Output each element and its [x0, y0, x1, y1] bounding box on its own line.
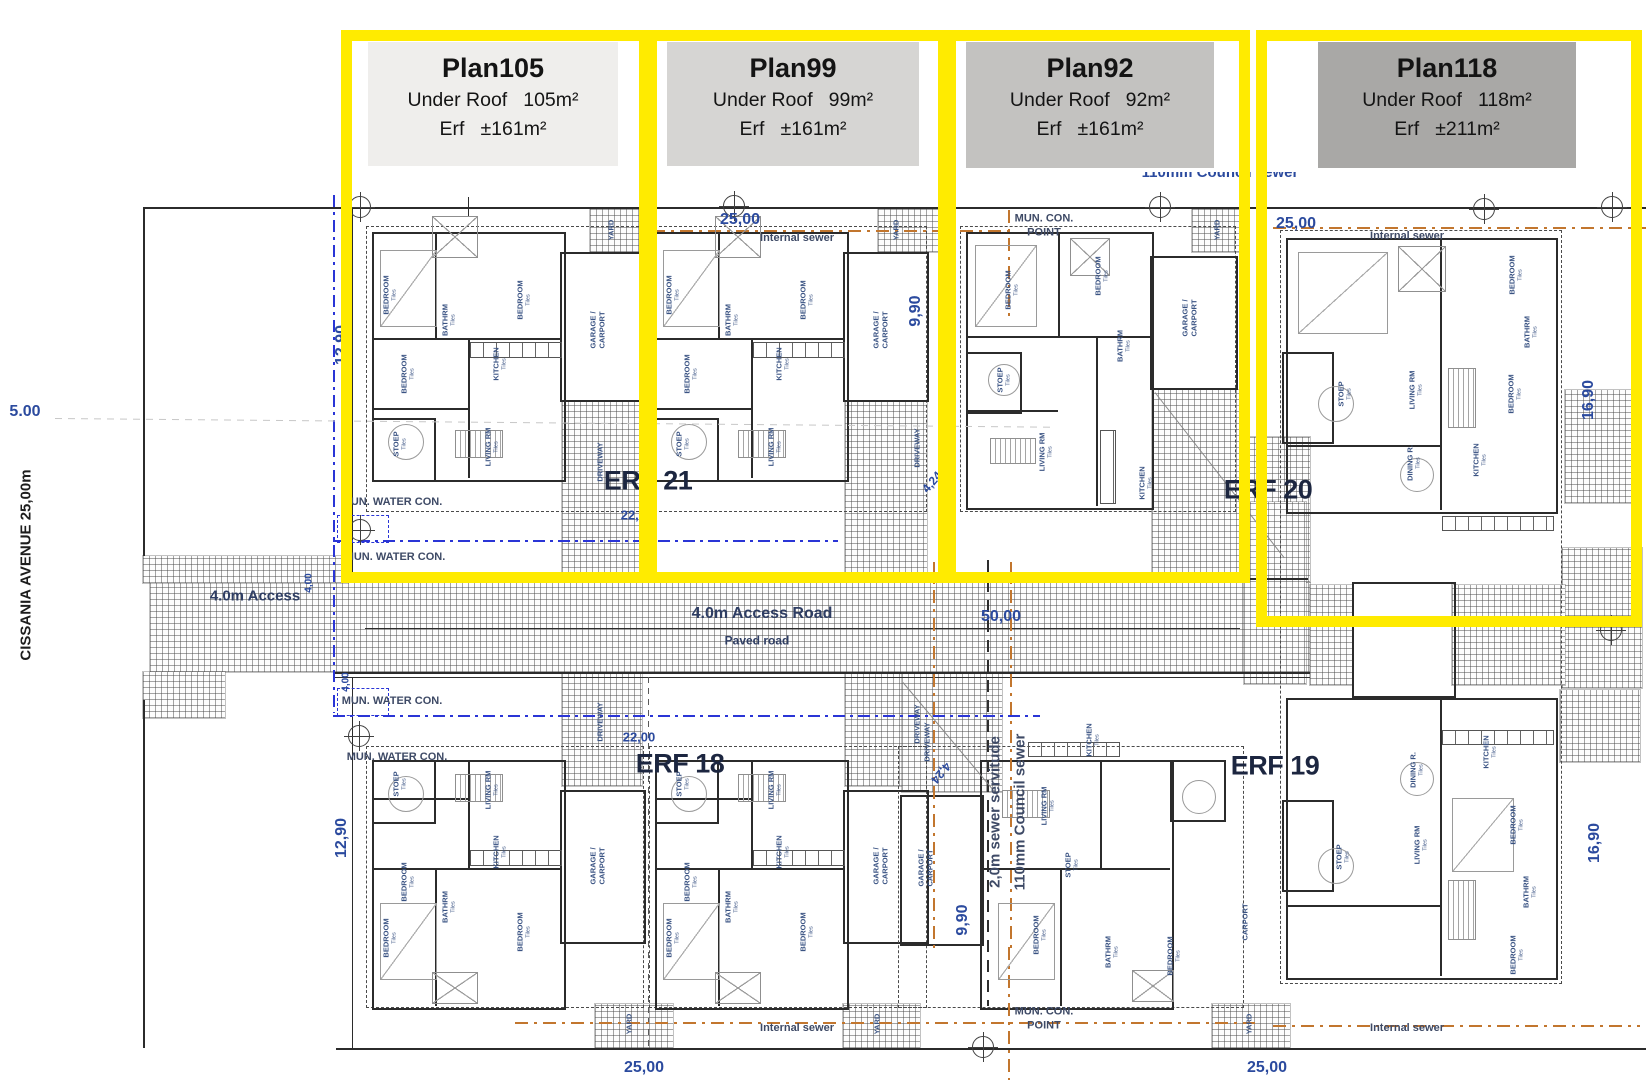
room-label-bedroom: BEDROOMTiles: [1510, 935, 1525, 974]
note-label-mun-con-point: MUN. CON. POINT: [1015, 1005, 1074, 1033]
plan-card-plan99: Plan99Under Roof99m²Erf±161m²: [667, 42, 919, 166]
room-label-text: YARD: [625, 1014, 634, 1035]
room-label-bathrm: BATHRMTiles: [1105, 936, 1120, 968]
erf-label-erf-19: ERF 19: [1231, 751, 1320, 782]
room-label-text: BEDROOM: [1166, 936, 1175, 975]
furniture-b: [1452, 798, 1514, 872]
room-label-text: CARPORT: [1241, 903, 1250, 940]
room-label-dining-r: DINING R.Tiles: [1410, 752, 1425, 788]
room-label-kitchen: KITCHENTiles: [776, 835, 791, 868]
sewer-line: [1273, 1025, 1640, 1027]
note-label-110mm-council-sewer: 110mm Council sewer: [1012, 734, 1031, 891]
note-label-4-0m-access: 4.0m Access: [210, 588, 300, 607]
room-label-text: BATHRM: [441, 891, 450, 923]
drawing-line: [365, 628, 1240, 629]
plan-card-erf_label: Erf: [1037, 115, 1062, 144]
room-label-subtext: Tiles: [450, 891, 456, 923]
dimension-label-50-00: 50,00: [981, 608, 1021, 626]
plan-card-under_roof_label: Under Roof: [408, 86, 508, 115]
room-label-text: KITCHEN: [1482, 735, 1491, 768]
plan-card-row: Erf±161m²: [1037, 115, 1144, 144]
room-label-subtext: Tiles: [808, 912, 814, 951]
plan-card-erf_label: Erf: [740, 115, 765, 144]
plan-card-title: Plan92: [1046, 52, 1133, 86]
furniture-t: [1182, 780, 1216, 814]
room-label-text: BATHRM: [1522, 876, 1531, 908]
plan-card-row: Erf±211m²: [1394, 115, 1499, 144]
hatch-region: [1560, 690, 1640, 762]
room-label-text: BEDROOM: [1509, 935, 1518, 974]
plan-card-plan92: Plan92Under Roof92m²Erf±161m²: [966, 42, 1214, 168]
room-label-subtext: Tiles: [525, 912, 531, 951]
room-label-text: STOEP: [1064, 852, 1073, 877]
room-label-subtext: Tiles: [1113, 936, 1119, 968]
note-label-paved-road: Paved road: [725, 634, 790, 649]
plan-card-plan118: Plan118Under Roof118m²Erf±211m²: [1318, 42, 1576, 168]
note-label-4-0m-access-road: 4.0m Access Road: [692, 604, 833, 624]
room-label-text: BEDROOM: [665, 918, 674, 957]
room-label-yard: YARD: [874, 1014, 883, 1035]
plan-card-erf_label: Erf: [1394, 115, 1419, 144]
room-label-subtext: Tiles: [1073, 852, 1079, 877]
room-label-living-rm: LIVING RMTiles: [485, 771, 500, 810]
room-label-text: BEDROOM: [1032, 915, 1041, 954]
furniture-k: [1442, 730, 1554, 745]
room-label-text: BEDROOM: [799, 912, 808, 951]
room-label-subtext: Tiles: [409, 862, 415, 901]
plan-card-title: Plan118: [1397, 52, 1498, 86]
room-label-driveway: DRIVEWAY: [924, 722, 933, 761]
dimension-label-5-00: 5.00: [9, 403, 40, 421]
plan-card-under_roof_value: 92m²: [1126, 86, 1170, 115]
room-label-text: KITCHEN: [492, 835, 501, 868]
drawing-line: [1286, 905, 1440, 907]
room-label-living-rm: LIVING RMTiles: [768, 771, 783, 810]
room-label-subtext: Tiles: [1518, 805, 1524, 844]
room-label-stoep: STOEPTiles: [1336, 844, 1351, 869]
room-label-text: DINING R.: [1409, 752, 1418, 788]
room-label-text: LIVING RM: [484, 771, 493, 810]
room-label-bedroom: BEDROOMTiles: [1167, 936, 1182, 975]
room-label-subtext: Tiles: [1491, 735, 1497, 768]
room-label-subtext: Tiles: [1418, 752, 1424, 788]
drawing-line: [143, 700, 145, 1048]
room-label-kitchen: KITCHENTiles: [1086, 723, 1101, 756]
room-label-bedroom: BEDROOMTiles: [401, 862, 416, 901]
plan-card-plan105: Plan105Under Roof105m²Erf±161m²: [368, 42, 618, 166]
room-label-garage-carport: GARAGE / CARPORT: [872, 847, 889, 884]
room-label-text: STOEP: [392, 771, 401, 796]
room-label-text: LIVING RM: [767, 771, 776, 810]
room-label-text: GARAGE / CARPORT: [588, 847, 606, 884]
note-label-internal-sewer: Internal sewer: [760, 1022, 834, 1036]
dimension-label-4-00: 4,00: [341, 672, 352, 691]
room-label-driveway: DRIVEWAY: [597, 702, 606, 741]
dimension-label-25-00: 25,00: [624, 1059, 664, 1077]
room-label-subtext: Tiles: [1518, 935, 1524, 974]
room-label-text: DRIVEWAY: [923, 722, 932, 761]
plan-card-row: Erf±161m²: [740, 115, 847, 144]
sewer-line: [933, 562, 935, 954]
room-label-stoep: STOEPTiles: [1065, 852, 1080, 877]
room-label-text: BATHRM: [1104, 936, 1113, 968]
room-label-text: LIVING RM: [1040, 787, 1049, 826]
plan-card-row: Under Roof99m²: [713, 86, 873, 115]
room-label-text: DRIVEWAY: [913, 704, 922, 743]
furniture-x: [715, 972, 761, 1004]
note-label-mun-water-con: MUN. WATER CON.: [342, 695, 443, 709]
room-label-bedroom: BEDROOMTiles: [1033, 915, 1048, 954]
room-label-subtext: Tiles: [501, 835, 507, 868]
room-label-living-rm: LIVING RMTiles: [1041, 787, 1056, 826]
drawing-line: [1100, 760, 1102, 868]
room-label-subtext: Tiles: [1175, 936, 1181, 975]
plan-card-row: Under Roof118m²: [1362, 86, 1532, 115]
drawing-line: [333, 677, 1310, 678]
furniture-k: [753, 850, 845, 866]
room-label-text: KITCHEN: [775, 835, 784, 868]
room-label-subtext: Tiles: [1094, 723, 1100, 756]
drawing-line: [1060, 868, 1062, 1006]
plan-card-under_roof_value: 105m²: [523, 86, 578, 115]
plan-card-row: Erf±161m²: [440, 115, 547, 144]
hatch-region: [143, 556, 348, 583]
room-label-text: YARD: [1245, 1014, 1254, 1035]
drawing-line: [143, 207, 145, 556]
hatch-region: [143, 672, 225, 718]
room-label-text: YARD: [873, 1014, 882, 1035]
room-label-bedroom: BEDROOMTiles: [383, 918, 398, 957]
erf-label-erf-18: ERF 18: [636, 749, 725, 780]
room-label-text: BATHRM: [724, 891, 733, 923]
room-label-bedroom: BEDROOMTiles: [517, 912, 532, 951]
water-line: [333, 715, 1040, 717]
room-label-kitchen: KITCHENTiles: [493, 835, 508, 868]
plan-card-erf_value: ±161m²: [780, 115, 846, 144]
room-label-garage-carport: GARAGE / CARPORT: [917, 849, 934, 886]
room-label-subtext: Tiles: [1344, 844, 1350, 869]
room-label-yard: YARD: [626, 1014, 635, 1035]
room-label-subtext: Tiles: [776, 771, 782, 810]
room-label-subtext: Tiles: [493, 771, 499, 810]
room-label-bathrm: BATHRMTiles: [725, 891, 740, 923]
room-label-text: LIVING RM: [1413, 826, 1422, 865]
site-plan-canvas: Plan105Under Roof105m²Erf±161m²Plan99Und…: [0, 0, 1646, 1080]
room-label-subtext: Tiles: [784, 835, 790, 868]
room-label-subtext: Tiles: [1041, 915, 1047, 954]
plan-card-title: Plan105: [442, 52, 544, 86]
room-label-subtext: Tiles: [1049, 787, 1055, 826]
drawing-line: [333, 672, 1310, 674]
room-label-bedroom: BEDROOMTiles: [1510, 805, 1525, 844]
survey-marker-icon: [972, 1036, 994, 1058]
room-label-yard: YARD: [1246, 1014, 1255, 1035]
plan-card-under_roof_label: Under Roof: [1362, 86, 1462, 115]
room-label-text: GARAGE / CARPORT: [916, 849, 934, 886]
dimension-label-25-00: 25,00: [1247, 1059, 1287, 1077]
room-label-subtext: Tiles: [391, 918, 397, 957]
plan-card-under_roof_value: 99m²: [829, 86, 873, 115]
room-label-text: BEDROOM: [516, 912, 525, 951]
plan-card-row: Under Roof105m²: [408, 86, 579, 115]
dimension-label-16-90: 16,90: [1586, 823, 1604, 863]
plan-card-erf_value: ±161m²: [1077, 115, 1143, 144]
room-label-text: BEDROOM: [683, 862, 692, 901]
plan-card-row: Under Roof92m²: [1010, 86, 1170, 115]
room-label-text: BEDROOM: [382, 918, 391, 957]
room-label-subtext: Tiles: [674, 918, 680, 957]
room-label-subtext: Tiles: [1531, 876, 1537, 908]
room-label-subtext: Tiles: [1422, 826, 1428, 865]
room-label-bedroom: BEDROOMTiles: [684, 862, 699, 901]
plan-card-erf_value: ±211m²: [1435, 115, 1500, 144]
room-label-carport: CARPORT: [1242, 903, 1251, 940]
dimension-label-9-90: 9,90: [954, 904, 972, 935]
note-label-2-0m-sewer-servitude: 2,0m sewer servitude: [987, 736, 1006, 888]
plan-card-under_roof_value: 118m²: [1478, 86, 1532, 115]
room-label-subtext: Tiles: [692, 862, 698, 901]
note-label-mun-water-con: MUN. WATER CON.: [347, 751, 448, 765]
plan-card-title: Plan99: [749, 52, 836, 86]
room-label-subtext: Tiles: [401, 771, 407, 796]
furniture-k: [470, 850, 562, 866]
dimension-label-12-90: 12,90: [333, 818, 351, 858]
room-label-subtext: Tiles: [733, 891, 739, 923]
furniture-s: [1448, 880, 1476, 940]
room-label-kitchen: KITCHENTiles: [1483, 735, 1498, 768]
plan-card-under_roof_label: Under Roof: [1010, 86, 1110, 115]
water-line: [333, 195, 335, 713]
room-label-text: KITCHEN: [1085, 723, 1094, 756]
dimension-label-22-00: 22,00: [623, 730, 656, 745]
plan-card-erf_label: Erf: [440, 115, 465, 144]
room-label-text: BEDROOM: [400, 862, 409, 901]
room-label-driveway: DRIVEWAY: [914, 704, 923, 743]
room-label-text: DRIVEWAY: [596, 702, 605, 741]
survey-marker-icon: [348, 725, 370, 747]
dimension-label-4-00: 4,00: [304, 573, 315, 592]
plan-card-erf_value: ±161m²: [480, 115, 546, 144]
furniture-k: [1028, 742, 1120, 757]
room-label-living-rm: LIVING RMTiles: [1414, 826, 1429, 865]
room-label-bathrm: BATHRMTiles: [1523, 876, 1538, 908]
room-label-bedroom: BEDROOMTiles: [666, 918, 681, 957]
room-label-garage-carport: GARAGE / CARPORT: [589, 847, 606, 884]
room-label-bedroom: BEDROOMTiles: [800, 912, 815, 951]
note-label-internal-sewer: Internal sewer: [1370, 1022, 1444, 1036]
room-label-text: STOEP: [1335, 844, 1344, 869]
room-label-text: BEDROOM: [1509, 805, 1518, 844]
room-label-text: GARAGE / CARPORT: [871, 847, 889, 884]
note-label-cissania-avenue-25-00m: CISSANIA AVENUE 25,00m: [18, 469, 37, 660]
room-label-bathrm: BATHRMTiles: [442, 891, 457, 923]
room-label-stoep: STOEPTiles: [393, 771, 408, 796]
furniture-x: [432, 972, 478, 1004]
plan-card-under_roof_label: Under Roof: [713, 86, 813, 115]
